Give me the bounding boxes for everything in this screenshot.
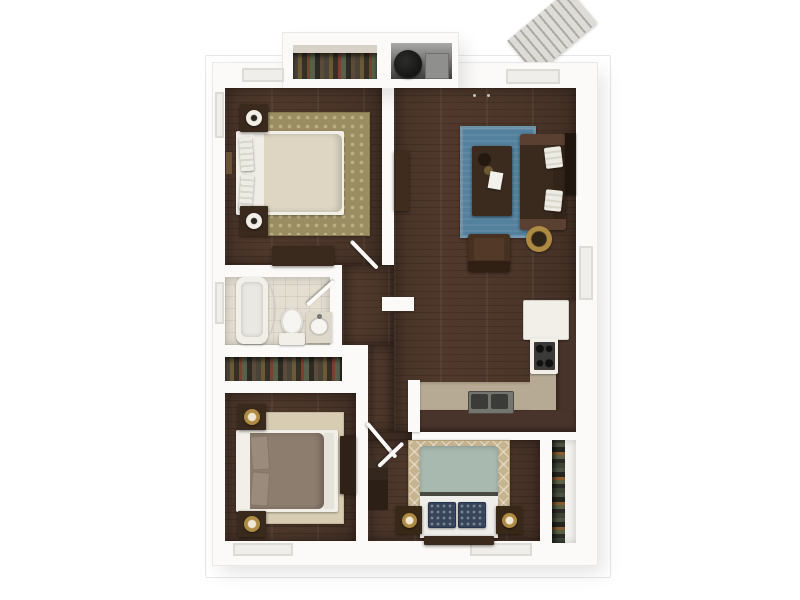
- toilet-bowl: [281, 308, 303, 335]
- kitchen-countertop-corner: [530, 374, 556, 410]
- bedroom-1-lamp-top: [246, 110, 262, 126]
- armchair-back: [468, 261, 510, 272]
- bedroom-1-duvet: [254, 134, 342, 212]
- kitchen-counter-end-panel: [408, 380, 420, 432]
- sofa-pillow-bottom: [544, 189, 563, 212]
- stove-cooktop: [534, 342, 555, 370]
- bedroom-3-lamp-left: [402, 513, 417, 528]
- refrigerator: [523, 300, 569, 340]
- kitchen-sink-basin-right: [491, 394, 508, 409]
- vanity-faucet: [317, 314, 322, 319]
- sofa-armrest-top: [520, 134, 566, 145]
- bedroom-3-closet-clothes: [552, 440, 565, 543]
- wall-tv: [565, 133, 576, 195]
- bedroom-1-lamp-bottom: [246, 213, 262, 229]
- dining-wall-stub: [382, 297, 414, 311]
- hallway-floor-b: [368, 345, 394, 432]
- entry-closet-clothes: [293, 53, 377, 79]
- kitchen-sink-basin-left: [471, 394, 488, 409]
- living-room-top-window: [506, 69, 560, 84]
- bedroom-2-lamp-bottom: [244, 516, 260, 532]
- bedroom-2-closet-clothes: [225, 357, 342, 381]
- entry-closet-door-knob-right: [487, 94, 490, 97]
- vanity-sink: [309, 317, 329, 336]
- bathroom-left-window: [215, 282, 224, 324]
- bedroom-1-top-window: [242, 68, 284, 82]
- armchair-cushion: [474, 238, 504, 260]
- bedroom-2-pillow-bottom: [250, 471, 270, 506]
- water-heater: [394, 50, 422, 78]
- bedroom-3-duvet: [420, 446, 498, 494]
- bedroom-3-lamp-right: [502, 513, 517, 528]
- bedroom-1-dresser: [272, 246, 334, 266]
- coffee-table-tray: [478, 153, 491, 166]
- bedroom-3-headboard: [424, 536, 494, 545]
- bedroom-1-left-window: [215, 92, 224, 138]
- console-table: [394, 151, 409, 211]
- living-room-right-window: [579, 246, 593, 300]
- electrical-panel: [425, 53, 449, 79]
- bedroom-2-desk: [340, 436, 356, 494]
- sofa-pillow-top: [544, 146, 563, 169]
- toilet-tank: [279, 333, 305, 345]
- bedroom-1-wall-art: [226, 152, 232, 174]
- floor-plan: [0, 0, 800, 600]
- bedroom-1-pillow-bottom: [239, 175, 254, 210]
- bedroom-2-lamp-top: [244, 409, 260, 425]
- side-table: [526, 226, 552, 252]
- bedroom-2-bottom-window: [233, 543, 293, 556]
- bedroom-2-blanket-fold: [324, 433, 334, 509]
- bedroom-3-pillow-left: [428, 502, 456, 528]
- entry-closet-shelf: [293, 45, 377, 53]
- bedroom-2-pillow-top: [250, 435, 270, 470]
- entry-closet-door-knob-left: [473, 94, 476, 97]
- hall-bookshelf: [368, 460, 388, 510]
- bedroom-3-pillow-right: [458, 502, 486, 528]
- bedroom-1-pillow-top: [239, 137, 254, 172]
